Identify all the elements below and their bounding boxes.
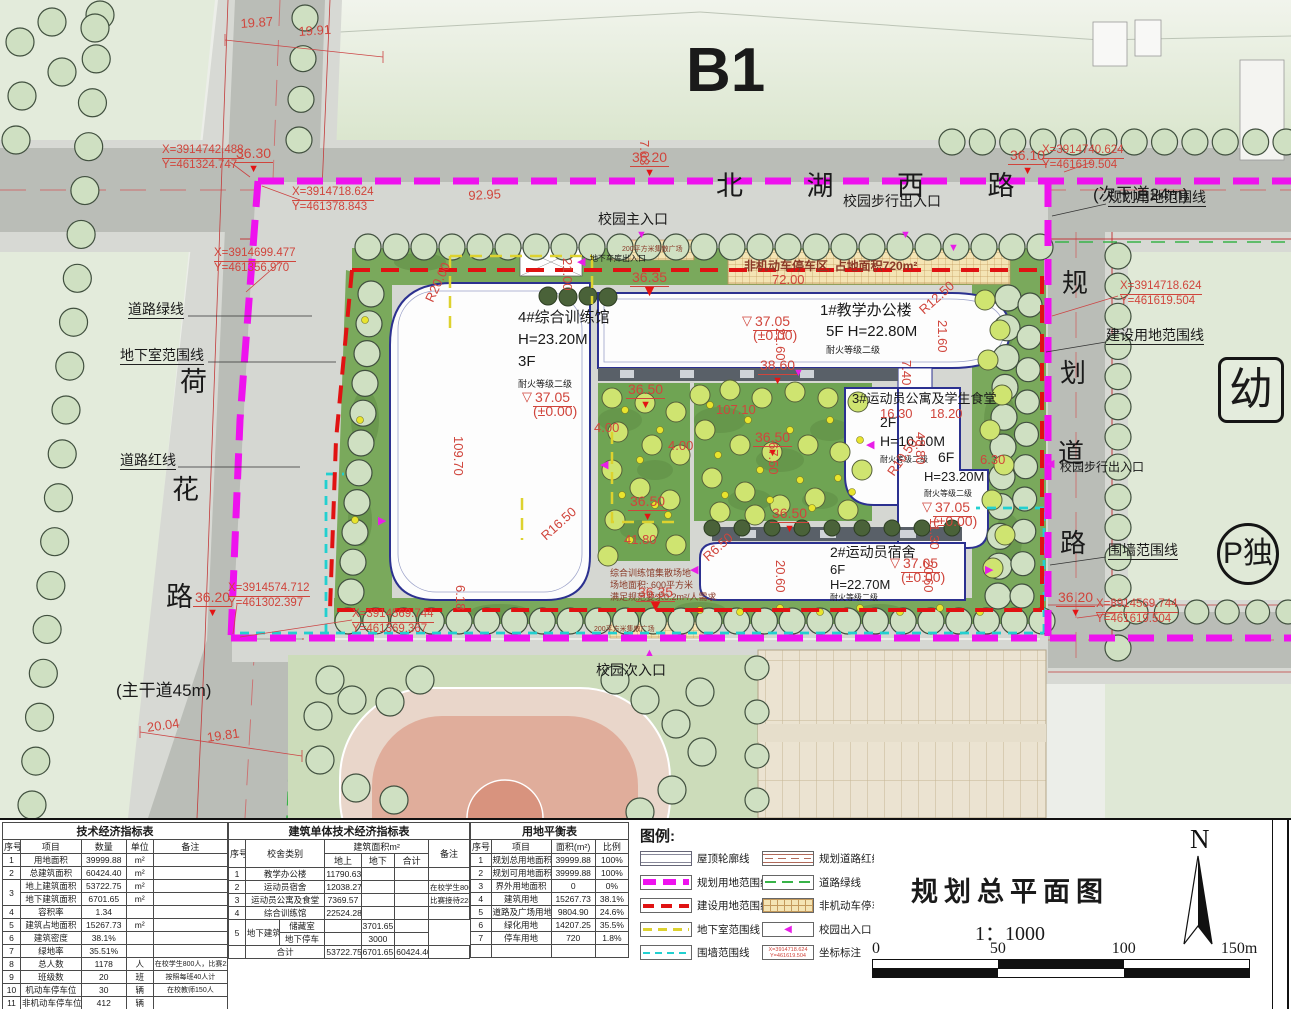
table-cell: 5 (3, 919, 21, 932)
table-row: 3界外用地面积00% (471, 880, 629, 893)
table-cell (395, 894, 429, 907)
legend-label: 规划用地范围线 (697, 875, 771, 890)
table-cell: 6701.65 (361, 946, 395, 959)
table-row: 8总人数1178人在校学生800人，比赛228人 (3, 958, 228, 971)
table-cell (153, 906, 227, 919)
tree-icon (745, 788, 769, 812)
tree-icon (48, 58, 76, 86)
magenta-swatch-icon (640, 875, 692, 890)
legend-item: 屋顶轮廓线 (640, 847, 771, 871)
table-header-cell: 备注 (428, 840, 469, 868)
table-title: 技术经济指标表 (3, 823, 228, 840)
tree-icon (638, 522, 658, 542)
scale-bar: 050100150m (872, 940, 1250, 982)
tree-icon (354, 341, 380, 367)
frame-line-outer (1287, 820, 1289, 1009)
tree-icon (599, 288, 617, 306)
table-header-cell: 地上 (325, 854, 361, 868)
roof-swatch-icon (640, 851, 692, 866)
table-cell: 30 (81, 984, 126, 997)
tree-icon (352, 517, 359, 524)
table-row: 2规划可用地面积39999.88100% (471, 867, 629, 880)
table-cell: 地下建筑 (245, 920, 279, 946)
table-cell (395, 868, 429, 881)
table-cell: 1 (229, 868, 246, 881)
table-header-cell: 序号 (3, 840, 21, 854)
table-cell: 0 (551, 880, 595, 893)
tree-icon (939, 129, 965, 155)
tree-icon (805, 488, 825, 508)
tree-icon (33, 615, 61, 643)
table-row: 5道路及广场用地9804.9024.6% (471, 906, 629, 919)
tree-icon (745, 656, 769, 680)
tree-icon (767, 497, 774, 504)
green-swatch-icon (762, 875, 814, 890)
tree-icon (292, 5, 318, 31)
drawing-title: 规划总平面图 (880, 870, 1140, 909)
tree-icon (362, 317, 369, 324)
table-row: 1规划总用地面积39999.88100% (471, 854, 629, 867)
tree-icon (2, 126, 30, 154)
table-cell: 38.1% (595, 893, 628, 906)
tree-icon (48, 440, 76, 468)
table-cell: 建筑密度 (21, 932, 82, 945)
table-cell: 60424.40 (395, 946, 429, 959)
table-cell: 412 (81, 997, 126, 1009)
table-cell (395, 933, 429, 946)
tree-icon (288, 86, 314, 112)
lawn-east (1105, 232, 1291, 612)
cyan-swatch-icon (640, 945, 692, 960)
north-label: N (1190, 824, 1210, 854)
tree-icon (338, 686, 366, 714)
tree-icon (745, 700, 769, 724)
table-cell (153, 919, 227, 932)
site-plan-canvas (0, 0, 1291, 818)
table-cell: 2 (3, 867, 21, 880)
tree-icon (346, 460, 372, 486)
tree-icon (631, 686, 659, 714)
table-cell: 地下建筑面积 (21, 893, 82, 906)
table-cell: 4 (229, 907, 246, 920)
tree-icon (775, 234, 801, 260)
table-row: 2运动员宿舍12038.27在校学生800人 (229, 881, 470, 894)
tree-icon (1017, 325, 1041, 349)
road-east (1048, 232, 1105, 668)
table-header-cell: 单位 (126, 840, 153, 854)
table-row: 5地下建筑储藏室3701.65 (229, 920, 470, 933)
table-land-balance: 用地平衡表序号项目面积(m²)比例1规划总用地面积39999.88100%2规划… (470, 822, 629, 958)
tree-icon (762, 442, 782, 462)
table-header-cell: 序号 (229, 840, 246, 868)
data-table: 技术经济指标表序号项目数量单位备注1用地面积39999.88m²2总建筑面积60… (2, 822, 228, 1009)
tree-icon (787, 427, 794, 434)
table-cell: 建筑占地面积 (21, 919, 82, 932)
tree-icon (1060, 129, 1086, 155)
table-row: 3地上建筑面积53722.75m² (3, 880, 228, 893)
tree-icon (1246, 600, 1270, 624)
table-cell: 0% (595, 880, 628, 893)
table-cell: 39999.88 (551, 867, 595, 880)
tree-icon (1105, 243, 1131, 269)
building4-footprint (390, 283, 590, 600)
table-cell: 9804.90 (551, 906, 595, 919)
table-row: 7停车用地7201.8% (471, 932, 629, 945)
tree-icon (1030, 129, 1056, 155)
tree-icon (848, 392, 868, 412)
table-cell: 在校学生800人，比赛228人 (153, 958, 227, 971)
table-cell (361, 881, 395, 894)
table-row: 4建筑用地15267.7338.1% (471, 893, 629, 906)
tree-icon (1121, 129, 1147, 155)
tree-icon (579, 287, 597, 305)
table-cell (325, 920, 361, 933)
table-cell (471, 945, 492, 958)
tree-icon (8, 82, 36, 110)
tree-icon (1105, 273, 1131, 299)
legend-item: 道路绿线 (762, 871, 874, 895)
legend-label: 非机动车停车场地 (819, 898, 874, 913)
tree-icon (686, 678, 714, 706)
tree-icon (944, 520, 960, 536)
table-row: 地下建筑面积6701.65m² (3, 893, 228, 906)
table-cell: 合计 (245, 946, 325, 959)
table-cell: m² (126, 880, 153, 893)
table-cell (361, 907, 395, 920)
tree-icon (757, 467, 764, 474)
table-cell (325, 933, 361, 946)
tree-icon (18, 791, 46, 818)
table-cell: 6701.65 (81, 893, 126, 906)
table-cell: 3701.65 (361, 920, 395, 933)
table-cell (153, 854, 227, 867)
tree-icon (1014, 455, 1038, 479)
tree-icon (1212, 129, 1238, 155)
tree-icon (730, 435, 750, 455)
tree-icon (1012, 519, 1036, 543)
legend-label: 建设用地范围线 (697, 898, 771, 913)
table-header-cell: 面积(m²) (551, 840, 595, 854)
tree-icon (764, 520, 780, 536)
legend-label: 围墙范围线 (697, 945, 750, 960)
tree-icon (747, 234, 773, 260)
tree-icon (355, 234, 381, 260)
tree-icon (635, 234, 661, 260)
table-cell: 总人数 (21, 958, 82, 971)
table-cell: 4 (3, 906, 21, 919)
tree-icon (342, 774, 370, 802)
tree-icon (1011, 552, 1035, 576)
table-header-cell: 校舍类别 (245, 840, 325, 868)
tree-icon (1105, 333, 1131, 359)
tree-icon (598, 546, 618, 566)
table-row: 合计53722.756701.6560424.40 (229, 946, 470, 959)
tree-icon (627, 537, 634, 544)
tree-icon (1105, 424, 1131, 450)
table-title: 建筑单体技术经济指标表 (229, 823, 470, 840)
table-header-cell: 合计 (395, 854, 429, 868)
red-swatch-icon (640, 898, 692, 913)
table-cell (153, 997, 227, 1009)
table-cell: 15267.73 (551, 893, 595, 906)
drawing-title-block: 规划总平面图 1：1000 (880, 870, 1140, 946)
tree-icon (824, 520, 840, 536)
table-cell: 人 (126, 958, 153, 971)
tree-icon (286, 127, 312, 153)
tree-icon (71, 177, 99, 205)
table-cell: 53722.75 (325, 946, 361, 959)
tree-icon (635, 393, 655, 413)
tree-icon (1105, 514, 1131, 540)
table-row: 11非机动车停车位412辆 (3, 997, 228, 1009)
table-cell: 12038.27 (325, 881, 361, 894)
table-cell: 53722.75 (81, 880, 126, 893)
tree-icon (657, 427, 664, 434)
tree-icon (662, 710, 690, 738)
coord-swatch-icon: X=3914718.624Y=461619.504 (762, 945, 814, 960)
table-cell: 7369.57 (325, 894, 361, 907)
table-technical-indicators: 技术经济指标表序号项目数量单位备注1用地面积39999.88m²2总建筑面积60… (2, 822, 228, 1009)
tree-icon (971, 234, 997, 260)
table-header-cell: 备注 (153, 840, 227, 854)
table-cell: 1178 (81, 958, 126, 971)
tree-icon (710, 502, 730, 522)
tree-icon (38, 8, 66, 36)
table-cell: 绿化用地 (491, 919, 551, 932)
tree-icon (1185, 600, 1209, 624)
tree-icon (376, 688, 404, 716)
tree-icon (995, 285, 1021, 311)
table-cell (428, 868, 469, 881)
table-cell: 教学办公楼 (245, 868, 325, 881)
table-cell: 容积率 (21, 906, 82, 919)
table-cell: 6 (471, 919, 492, 932)
tree-icon (1000, 129, 1026, 155)
table-cell: 38.1% (81, 932, 126, 945)
site-plan-drawing: B1北 湖 西 路(次干道24m)荷花路(主干道45m)规划道路规划用地范围线道… (0, 0, 1291, 818)
table-row: 6绿化用地14207.2535.5% (471, 919, 629, 932)
legend-label: 地下室范围线 (697, 922, 760, 937)
building2-footprint (700, 543, 965, 600)
table-cell: 用地面积 (21, 854, 82, 867)
legend: 图例: 屋顶轮廓线规划用地范围线建设用地范围线地下室范围线围墙范围线 规划道路红… (638, 820, 874, 1009)
table-cell: 7 (3, 945, 21, 958)
table-cell: 39999.88 (81, 854, 126, 867)
table-cell: 10 (3, 984, 21, 997)
tree-icon (1243, 129, 1269, 155)
hatch-swatch-icon (762, 898, 814, 913)
scalebar-tick-label: 100 (1112, 940, 1136, 958)
tree-icon (969, 129, 995, 155)
table-cell: 辆 (126, 997, 153, 1009)
table-cell: 1 (3, 854, 21, 867)
table-cell: 22524.28 (325, 907, 361, 920)
table-cell: 1.34 (81, 906, 126, 919)
table-cell: m² (126, 893, 153, 906)
legend-label: 屋顶轮廓线 (697, 851, 750, 866)
tree-icon (794, 520, 810, 536)
tree-icon (358, 281, 384, 307)
table-header-cell: 项目 (491, 840, 551, 854)
tree-icon (994, 455, 1014, 475)
legend-item: 建设用地范围线 (640, 894, 771, 918)
table-cell: m² (126, 919, 153, 932)
tree-icon (1154, 600, 1178, 624)
table-cell: 20 (81, 971, 126, 984)
tree-icon (665, 512, 672, 519)
tree-icon (1010, 584, 1034, 608)
planting-texture (637, 460, 673, 480)
table-building-indicators: 建筑单体技术经济指标表序号校舍类别建筑面积m²备注地上地下合计1教学办公楼117… (228, 822, 470, 959)
table-cell: 14207.25 (551, 919, 595, 932)
tree-icon (857, 437, 864, 444)
table-cell: 3000 (361, 933, 395, 946)
table-cell: 6 (3, 932, 21, 945)
table-cell: 总建筑面积 (21, 867, 82, 880)
tree-icon (29, 659, 57, 687)
legend-item: 地下室范围线 (640, 918, 771, 942)
tree-icon (818, 388, 838, 408)
table-cell: 班 (126, 971, 153, 984)
tree-icon (695, 420, 715, 440)
tree-icon (352, 370, 378, 396)
tree-icon (41, 528, 69, 556)
tree-icon (630, 478, 650, 498)
tree-icon (82, 45, 110, 73)
tree-icon (688, 738, 716, 766)
table-header-cell: 序号 (471, 840, 492, 854)
table-cell: 3 (471, 880, 492, 893)
drawing-sheet: B1北 湖 西 路(次干道24m)荷花路(主干道45m)规划道路规划用地范围线道… (0, 0, 1291, 1009)
tree-icon (1105, 575, 1131, 601)
table-cell (491, 945, 551, 958)
table-cell: 比赛接待228人 (428, 894, 469, 907)
tree-icon (720, 380, 740, 400)
tree-icon (702, 468, 722, 488)
legend-item: 规划用地范围线 (640, 871, 771, 895)
tree-icon (607, 234, 633, 260)
tree-icon (1018, 293, 1042, 317)
tree-icon (734, 520, 750, 536)
tree-icon (835, 475, 842, 482)
table-cell: 5 (229, 920, 246, 946)
tree-icon (704, 520, 720, 536)
tree-icon (22, 747, 50, 775)
table-cell: 11790.63 (325, 868, 361, 881)
tree-icon (78, 89, 106, 117)
tree-icon (937, 605, 944, 612)
tree-icon (745, 417, 752, 424)
tree-icon (915, 234, 941, 260)
tree-icon (1105, 394, 1131, 420)
table-cell (395, 920, 429, 933)
tree-icon (658, 776, 686, 804)
table-cell: 道路及广场用地 (491, 906, 551, 919)
tree-icon (797, 477, 804, 484)
table-cell: 39999.88 (551, 854, 595, 867)
tree-icon (849, 489, 856, 496)
tree-icon (539, 287, 557, 305)
tree-icon (652, 502, 659, 509)
tree-icon (601, 666, 629, 694)
tree-icon (602, 388, 622, 408)
table-cell: 100% (595, 867, 628, 880)
table-cell: 3 (3, 880, 21, 906)
table-cell: 4 (471, 893, 492, 906)
table-cell (153, 893, 227, 906)
tree-icon (619, 492, 626, 499)
table-cell: 2 (471, 867, 492, 880)
tree-icon (715, 452, 722, 459)
table-header-cell: 地下 (361, 854, 395, 868)
tree-icon (37, 572, 65, 600)
tree-icon (985, 583, 1011, 609)
table-cell: 15267.73 (81, 919, 126, 932)
table-cell (229, 946, 246, 959)
tree-icon (983, 558, 1003, 578)
table-cell: 8 (3, 958, 21, 971)
table-cell: 辆 (126, 984, 153, 997)
legend-label: 规划道路红线及中心线 (819, 851, 874, 866)
table-cell (428, 907, 469, 920)
tree-icon (1105, 364, 1131, 390)
table-cell: 35.51% (81, 945, 126, 958)
table-row: 5建筑占地面积15267.73m² (3, 919, 228, 932)
tree-icon (995, 525, 1015, 545)
tree-icon (990, 320, 1010, 340)
tree-icon (6, 28, 34, 56)
tree-icon (338, 579, 364, 605)
tree-icon (1016, 358, 1040, 382)
table-cell (126, 906, 153, 919)
table-header-cell: 数量 (81, 840, 126, 854)
table-cell: 运动员宿舍 (245, 881, 325, 894)
building1-footprint (598, 293, 1010, 368)
tree-icon (383, 234, 409, 260)
table-cell: 地下停车 (279, 933, 325, 946)
legend-item: 围墙范围线 (640, 941, 771, 965)
tree-icon (306, 746, 334, 774)
tree-icon (831, 234, 857, 260)
tree-icon (670, 445, 690, 465)
tree-icon (975, 290, 995, 310)
table-cell: 7 (471, 932, 492, 945)
tree-icon (406, 666, 434, 694)
tree-icon (660, 490, 680, 510)
table-cell: 11 (3, 997, 21, 1009)
table-row: 10机动车停车位30辆在校教师150人 (3, 984, 228, 997)
tree-icon (357, 417, 364, 424)
tree-icon (1182, 129, 1208, 155)
tree-icon (827, 417, 834, 424)
tree-icon (663, 234, 689, 260)
table-cell: 储藏室 (279, 920, 325, 933)
table-cell (595, 945, 628, 958)
table-cell: 运动员公寓及食堂 (245, 894, 325, 907)
tree-icon (809, 505, 816, 512)
table-cell: 地上建筑面积 (21, 880, 82, 893)
table-header-cell: 建筑面积m² (325, 840, 429, 854)
tree-icon (348, 430, 374, 456)
tree-icon (798, 435, 818, 455)
tree-icon (943, 234, 969, 260)
tree-icon (1015, 390, 1039, 414)
tree-icon (559, 288, 577, 306)
tree-icon (854, 520, 870, 536)
tree-icon (852, 460, 872, 480)
table-cell: 35.5% (595, 919, 628, 932)
legend-item: ◀校园出入口 (762, 918, 874, 942)
